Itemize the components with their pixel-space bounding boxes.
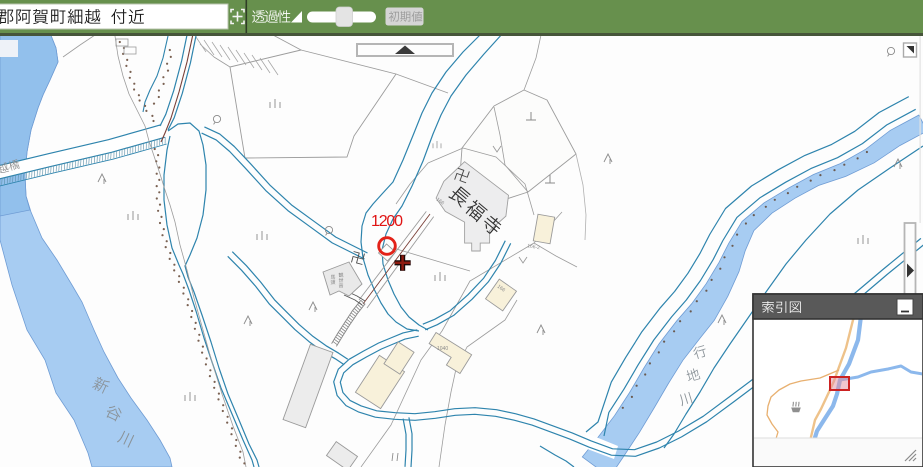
svg-text:1040: 1040	[437, 346, 448, 352]
svg-text:1200: 1200	[371, 213, 403, 230]
